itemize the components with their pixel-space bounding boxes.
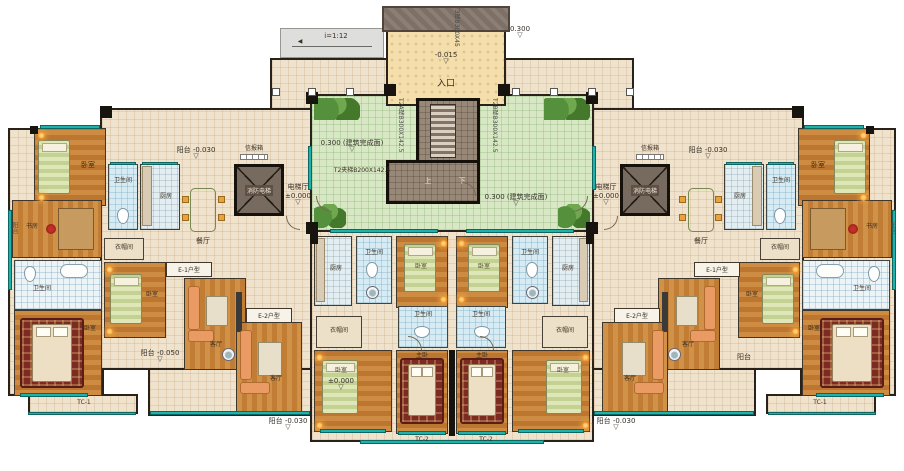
window-rail [816, 393, 884, 397]
bathroom-label: 卫生间 [853, 286, 871, 293]
level-marker-icon: ▽ [328, 385, 354, 391]
level-marker-courtyard-right: 0.300 (建筑完成面)▽ [485, 194, 548, 207]
closet-label: 衣帽间 [330, 328, 348, 335]
lamp-icon [316, 422, 323, 429]
living-label: 客厅 [210, 342, 222, 349]
chair-icon [679, 196, 686, 203]
level-marker-balcony-bottom-left: 阳台 -0.030▽ [269, 418, 308, 431]
window-rail [330, 229, 438, 233]
fire-elevator-right: 消防电梯 [620, 164, 670, 216]
entrance-label: 入口 [437, 80, 455, 90]
level-marker-icon: ▽ [510, 33, 530, 39]
window-rail [142, 162, 178, 165]
level-marker-icon: ▽ [141, 357, 180, 363]
mailbox-icon [240, 154, 268, 160]
wall-block [30, 126, 38, 134]
chair-icon [715, 196, 722, 203]
window-rail [110, 162, 136, 165]
coffee-table-icon [206, 296, 228, 326]
level-marker-icon: ▽ [285, 200, 311, 206]
lamp-icon [440, 240, 447, 247]
unit-label-e2: E-2户型 [614, 308, 660, 323]
coffee-table-icon [676, 296, 698, 326]
plant-icon [314, 98, 360, 120]
column [626, 88, 634, 96]
elevator-hall-label-left: 电梯厅 [288, 184, 309, 192]
balcony-label-right-mid: 阳台 [737, 354, 751, 362]
entrance-column [384, 84, 396, 96]
bathroom-label: 卫生间 [772, 178, 790, 185]
kitchen-label: 厨房 [160, 194, 172, 201]
kitchen-counter [752, 166, 762, 226]
fire-elevator-label: 消防电梯 [245, 185, 273, 196]
level-marker-zero-bedroom: ±0.000▽ [328, 378, 354, 391]
level-marker-zero-right: ±0.000▽ [593, 193, 619, 206]
plant-icon [544, 98, 590, 120]
lamp-icon [38, 132, 45, 139]
bed-icon [762, 274, 794, 324]
bathroom-label: 卫生间 [33, 286, 51, 293]
chair-icon [182, 214, 189, 221]
desk-icon [810, 208, 846, 250]
kitchen-counter [579, 238, 588, 302]
master-bedroom-label: 主卧 [476, 353, 488, 360]
window-rail [466, 229, 574, 233]
sofa-icon [188, 286, 200, 330]
level-marker-balcony-top-right: 阳台 -0.030▽ [689, 147, 728, 160]
bathtub-icon [60, 264, 88, 278]
mailbox-label-left: 信报箱 [245, 146, 263, 153]
bedroom-label: 卧室 [335, 368, 347, 375]
window-rail [320, 429, 386, 433]
ramp-slope-label: i=1:12 [324, 33, 348, 41]
window-rail [726, 162, 762, 165]
lamp-icon [792, 266, 799, 273]
tv-icon [236, 292, 242, 332]
lamp-icon [440, 296, 447, 303]
column [308, 88, 316, 96]
entrance-column [498, 84, 510, 96]
stair-up-label: 上 [425, 178, 432, 186]
stair-t2b-label: T2B梯B300X142.5 [490, 98, 499, 146]
bedroom-label: 卧室 [811, 162, 825, 170]
window-rail [768, 162, 794, 165]
entrance-canopy [382, 6, 510, 32]
balcony-rail [360, 440, 544, 444]
bed-icon [408, 364, 436, 416]
chair-icon [182, 196, 189, 203]
column [588, 88, 596, 96]
washer-icon [526, 286, 539, 299]
level-marker-zero-left: ±0.000▽ [285, 193, 311, 206]
level-marker-icon: ▽ [321, 147, 384, 153]
dining-table-icon [688, 188, 714, 232]
dining-table-icon [190, 188, 216, 232]
level-marker-icon: ▽ [485, 201, 548, 207]
kitchen-label: 厨房 [562, 266, 574, 273]
wall-block [866, 126, 874, 134]
ramp-line [292, 46, 372, 47]
living-label: 客厅 [682, 342, 694, 349]
balcony-rail [768, 412, 876, 415]
chair-icon [218, 196, 225, 203]
window-rail [398, 431, 446, 435]
window-rail [458, 431, 506, 435]
wall-block [100, 106, 112, 118]
level-marker-balcony-bottom-right: 阳台 -0.030▽ [597, 418, 636, 431]
bed-icon [110, 274, 142, 324]
party-wall [449, 350, 455, 436]
washer-icon [366, 286, 379, 299]
coffee-table-icon [622, 342, 646, 376]
lamp-icon [316, 354, 323, 361]
level-marker-courtyard-left: 0.300 (建筑完成面)▽ [321, 140, 384, 153]
bedroom-label: 卧室 [746, 292, 758, 299]
balcony-rail [594, 411, 754, 415]
kitchen-counter [142, 166, 152, 226]
balcony-code-label: TC-2 [415, 437, 429, 444]
wall-block [792, 106, 804, 118]
window-rail [804, 125, 864, 129]
bed-icon [38, 140, 70, 194]
sofa-icon [704, 286, 716, 330]
elevator-hall-label-right: 电梯厅 [596, 184, 617, 192]
closet-label: 衣帽间 [556, 328, 574, 335]
courtyard-door-left [308, 146, 312, 190]
balcony-code-label: TC-1 [813, 400, 827, 407]
balcony-rail [28, 412, 136, 415]
column [512, 88, 520, 96]
bedroom-label: 卧室 [84, 326, 96, 333]
chair-icon [848, 224, 858, 234]
unit-label-e1: E-1户型 [694, 262, 740, 277]
desk-icon [58, 208, 94, 250]
wall-block [586, 232, 594, 244]
dining-label: 餐厅 [694, 238, 708, 246]
stair-flight [430, 104, 456, 158]
balcony-code-label: TC-1 [77, 400, 91, 407]
level-marker-icon: ▽ [269, 425, 308, 431]
bathroom-label: 卫生间 [521, 250, 539, 257]
lamp-icon [792, 328, 799, 335]
bathroom-label: 卫生间 [114, 178, 132, 185]
sofa-icon [240, 382, 270, 394]
bedroom-label: 卧室 [415, 264, 427, 271]
floor-plan: i=1:12 ◀ -0.015▽ 入口 0.300▽ T3梯B300X45 T2… [0, 0, 904, 471]
level-marker-entrance: -0.015▽ [435, 52, 458, 65]
stair-t2a-label: T2A梯B300X142.5 [396, 98, 405, 146]
level-marker-balcony-top-left: 阳台 -0.030▽ [177, 147, 216, 160]
coffee-table-icon [258, 342, 282, 376]
lamp-icon [582, 354, 589, 361]
stair-t3-label: T3梯B300X45 [452, 6, 461, 52]
lamp-icon [860, 194, 867, 201]
chair-icon [715, 214, 722, 221]
column [346, 88, 354, 96]
tv-icon [662, 292, 668, 332]
bathtub-icon [816, 264, 844, 278]
sofa-icon [240, 330, 252, 380]
level-marker-balcony-mid-left: 阳台 -0.050▽ [141, 350, 180, 363]
dining-label: 餐厅 [196, 238, 210, 246]
balcony-code-label: TC-2 [479, 437, 493, 444]
study-label: 书房 [866, 224, 878, 231]
bed-icon [468, 364, 496, 416]
fire-elevator-label: 消防电梯 [631, 185, 659, 196]
balcony-label-left-edge: 阳台 [10, 222, 19, 234]
bathroom-label: 卫生间 [365, 250, 383, 257]
unit-label-e1: E-1户型 [166, 262, 212, 277]
kitchen-label: 厨房 [734, 194, 746, 201]
lamp-icon [106, 266, 113, 273]
stair-mid-label: T2夹梯B200X142.5 [334, 168, 390, 175]
sofa-icon [634, 382, 664, 394]
chair-icon [679, 214, 686, 221]
stair-down-label: 下 [459, 178, 466, 186]
sofa-icon [652, 330, 664, 380]
level-marker-icon: ▽ [597, 425, 636, 431]
washer-icon [668, 348, 681, 361]
bed-icon [834, 140, 866, 194]
washer-icon [222, 348, 235, 361]
level-marker-icon: ▽ [435, 59, 458, 65]
lamp-icon [458, 296, 465, 303]
master-bedroom-label: 主卧 [416, 353, 428, 360]
living-label: 客厅 [270, 376, 282, 383]
unit-label-e2: E-2户型 [246, 308, 292, 323]
balcony-label-right-edge: 阳台 [888, 222, 897, 234]
ramp-arrow-icon: ◀ [298, 39, 303, 46]
fire-elevator-left: 消防电梯 [234, 164, 284, 216]
bed-icon [32, 324, 72, 382]
bedroom-label: 卧室 [81, 162, 95, 170]
bedroom-label: 卧室 [808, 326, 820, 333]
mailbox-label-right: 信报箱 [641, 146, 659, 153]
lamp-icon [458, 240, 465, 247]
lamp-icon [582, 422, 589, 429]
bed-icon [832, 324, 872, 382]
column [550, 88, 558, 96]
window-rail [40, 125, 100, 129]
closet-label: 衣帽间 [771, 245, 789, 252]
mailbox-icon [636, 154, 664, 160]
bathroom-label: 卫生间 [472, 312, 490, 319]
column [272, 88, 280, 96]
level-marker-canopy: 0.300▽ [510, 26, 530, 39]
study-label: 书房 [26, 224, 38, 231]
chair-icon [218, 214, 225, 221]
level-marker-icon: ▽ [593, 200, 619, 206]
balcony-rail [150, 411, 310, 415]
window-rail [20, 393, 88, 397]
living-label: 客厅 [624, 376, 636, 383]
bedroom-label: 卧室 [478, 264, 490, 271]
bedroom-label: 卧室 [146, 292, 158, 299]
kitchen-label: 厨房 [330, 266, 342, 273]
level-marker-icon: ▽ [689, 154, 728, 160]
kitchen-counter [316, 238, 325, 302]
bathroom-label: 卫生间 [414, 312, 432, 319]
wall-block [310, 232, 318, 244]
window-rail [518, 429, 584, 433]
bedroom-label: 卧室 [557, 368, 569, 375]
closet-label: 衣帽间 [115, 245, 133, 252]
lamp-icon [106, 328, 113, 335]
level-marker-icon: ▽ [177, 154, 216, 160]
lamp-icon [38, 194, 45, 201]
chair-icon [46, 224, 56, 234]
